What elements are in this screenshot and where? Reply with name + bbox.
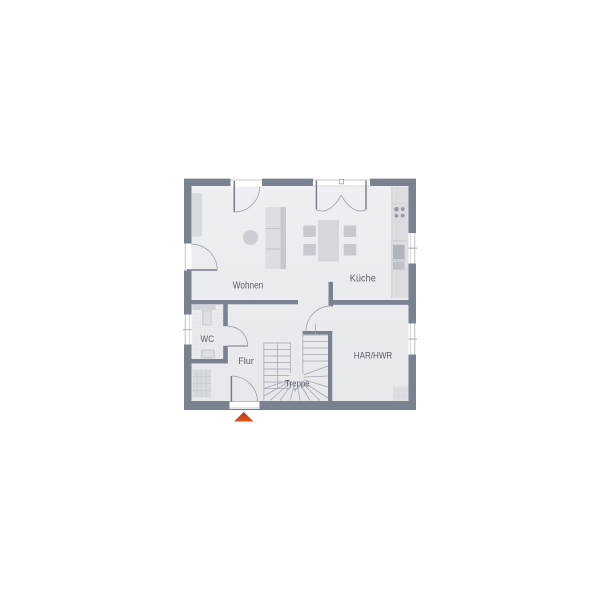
svg-text:Flur: Flur <box>238 356 254 367</box>
svg-text:HAR/HWR: HAR/HWR <box>354 350 393 360</box>
svg-text:Küche: Küche <box>350 274 376 285</box>
svg-text:Treppe: Treppe <box>285 379 310 389</box>
svg-text:WC: WC <box>201 334 215 344</box>
svg-text:Wohnen: Wohnen <box>233 281 264 292</box>
